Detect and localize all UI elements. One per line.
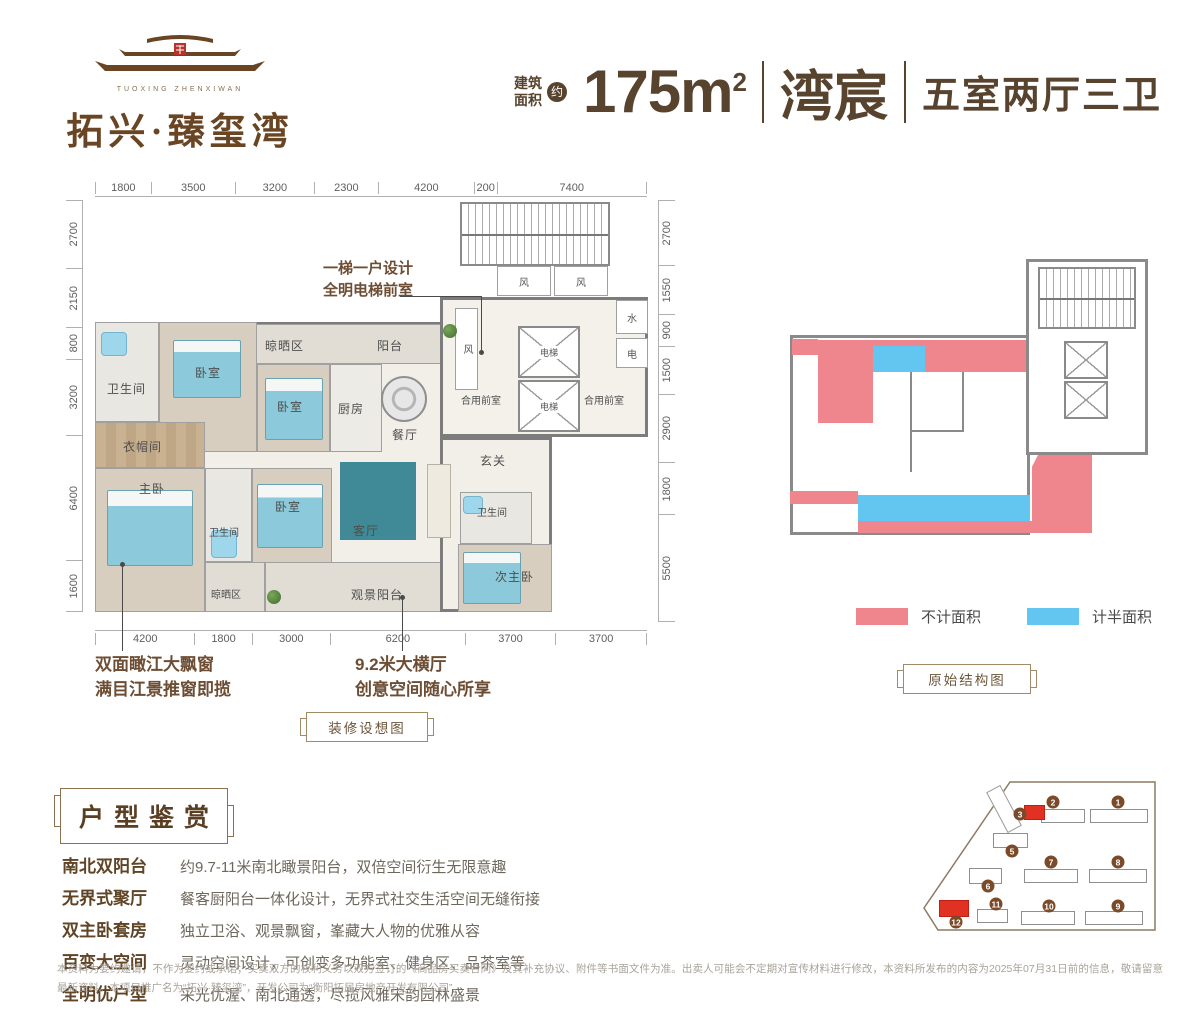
dimension-value: 3000 (252, 633, 330, 645)
callout-bay-window: 双面瞰江大飘窗 满目江景推窗即揽 (95, 652, 231, 702)
legend-swatch (856, 608, 908, 625)
callout-hall: 9.2米大横厅 创意空间随心所享 (355, 652, 491, 702)
site-building (977, 909, 1008, 923)
half-counted-area (873, 346, 925, 372)
feature-row: 无界式聚厅餐客厨阳台一体化设计，无界式社交生活空间无缝衔接 (62, 884, 540, 909)
site-building-number: 5 (1006, 845, 1019, 858)
dimension-value: 5500 (659, 514, 675, 622)
dimension-value: 3700 (465, 633, 556, 645)
water-meter-room: 水 (616, 300, 648, 334)
room-label-shared-lobby: 合用前室 (584, 392, 624, 407)
callout-leader-line (122, 565, 123, 651)
legend-item: 计半面积 (1027, 606, 1152, 627)
dimension-value: 3200 (66, 359, 82, 435)
wind-shaft-3: 风 (455, 308, 478, 390)
room-label-cloakroom: 衣帽间 (123, 438, 162, 455)
callout-hall-line1: 9.2米大横厅 (355, 652, 491, 677)
area-superscript: 2 (733, 67, 746, 97)
area-label-line2: 面积 (514, 92, 542, 109)
dimension-value: 3500 (151, 182, 235, 194)
plant (267, 590, 281, 604)
brand-logo: TUOXING ZHENXIWAN 拓兴·臻玺湾 (52, 30, 308, 155)
dimension-value: 4200 (95, 633, 194, 645)
site-plan: 12356789101112 (912, 772, 1190, 960)
site-building (1024, 869, 1078, 883)
site-building (1090, 809, 1148, 823)
feature-label: 无界式聚厅 (62, 884, 180, 909)
brand-latin: TUOXING ZHENXIWAN (52, 86, 308, 93)
area-prefix: 建筑 面积 约 (514, 75, 567, 109)
room-label-bathroom: 卫生间 (107, 380, 146, 397)
bed (107, 490, 193, 566)
elevator-2: 电梯 (518, 380, 580, 432)
approx-badge: 约 (547, 82, 567, 102)
callout-leader-line (402, 598, 403, 651)
site-building-number: 12 (950, 916, 963, 929)
site-building-number: 6 (982, 880, 995, 893)
callout-hall-line2: 创意空间随心所享 (355, 677, 491, 702)
dimension-value: 1800 (95, 182, 151, 194)
plaque-decor-plan: 装修设想图 (306, 712, 428, 742)
elevator-1: 电梯 (518, 326, 580, 378)
rooms-description: 五室两厅三卫 (922, 64, 1162, 119)
area-label-line1: 建筑 (514, 75, 542, 92)
room-label-bedroom: 卧室 (195, 364, 221, 381)
dimension-value: 6200 (330, 633, 465, 645)
dimension-value: 7400 (497, 182, 648, 194)
half-counted-area (858, 495, 1030, 521)
dimension-value: 3200 (235, 182, 314, 194)
site-building (1024, 805, 1045, 820)
elevator-label: 电梯 (538, 400, 560, 413)
dimension-value: 800 (66, 327, 82, 359)
dimension-value: 2150 (66, 268, 82, 327)
room-label-drying: 晾晒区 (211, 586, 241, 601)
sofa (427, 464, 451, 538)
dimension-value: 3700 (555, 633, 647, 645)
plant (443, 324, 457, 338)
uncounted-area (790, 491, 858, 504)
callout-leader-line (400, 296, 482, 297)
north-balcony (228, 324, 455, 364)
bathtub (101, 332, 127, 356)
area-label: 建筑 面积 (514, 75, 542, 109)
dimension-value: 1550 (659, 265, 675, 313)
room-label-master: 主卧 (139, 480, 165, 497)
dimension-value: 900 (659, 314, 675, 347)
dimensions-bottom: 420018003000620037003700 (95, 630, 647, 647)
feature-desc: 独立卫浴、观景飘窗，峯藏大人物的优雅从容 (180, 920, 480, 941)
legend-label: 计半面积 (1092, 606, 1152, 627)
site-building-number: 11 (990, 898, 1003, 911)
legend: 不计面积计半面积 (856, 606, 1152, 627)
wind-shaft-1: 风 (497, 266, 551, 296)
structural-wall (910, 430, 964, 432)
dimension-value: 6400 (66, 435, 82, 561)
feature-desc: 约9.7-11米南北瞰景阳台，双倍空间衍生无限意趣 (180, 856, 506, 877)
unit-name: 湾宸 (780, 52, 888, 131)
room-label-bedroom: 卧室 (277, 398, 303, 415)
header-divider (762, 61, 764, 123)
site-building-number: 10 (1043, 900, 1056, 913)
structural-diagram (780, 255, 1175, 585)
header-divider (904, 61, 906, 123)
room-label-bathroom: 卫生间 (209, 524, 239, 539)
feature-row: 南北双阳台约9.7-11米南北瞰景阳台，双倍空间衍生无限意趣 (62, 852, 540, 877)
structural-wall (962, 372, 964, 432)
site-building (1041, 809, 1085, 823)
room-label-shared-lobby: 合用前室 (461, 392, 501, 407)
room-label-living: 客厅 (353, 522, 379, 539)
dimensions-left: 27002150800320064001600 (66, 200, 83, 612)
disclaimer-text: 本资料为要约邀请，不作为要约或承诺；买卖双方的权利义务以双方签订的《商品房买卖合… (57, 960, 1163, 998)
header-title: 建筑 面积 约 175m2 湾宸 五室两厅三卫 (514, 52, 1162, 131)
room-label-bathroom: 卫生间 (477, 504, 507, 519)
features-title: 户型鉴赏 (60, 788, 228, 844)
dimensions-top: 180035003200230042002007400 (95, 180, 647, 197)
poster-page: TUOXING ZHENXIWAN 拓兴·臻玺湾 建筑 面积 约 175m2 湾… (0, 0, 1200, 1014)
brand-name: 拓兴·臻玺湾 (52, 101, 308, 155)
site-building-number: 7 (1045, 856, 1058, 869)
dining-table (381, 376, 427, 422)
site-building (939, 900, 969, 917)
room-label-second-master: 次主卧 (495, 568, 534, 585)
site-building-number: 2 (1047, 796, 1060, 809)
structural-elevator (1064, 381, 1108, 419)
plaque-structural-plan: 原始结构图 (903, 664, 1031, 694)
callout-bay-line2: 满目江景推窗即揽 (95, 677, 231, 702)
site-building-number: 9 (1112, 900, 1125, 913)
legend-item: 不计面积 (856, 606, 981, 627)
structural-wall (910, 372, 912, 472)
callout-bay-line1: 双面瞰江大飘窗 (95, 652, 231, 677)
room-label-bedroom: 卧室 (275, 498, 301, 515)
uncounted-area (792, 339, 818, 355)
dimension-value: 2700 (66, 200, 82, 268)
dimension-value: 200 (474, 182, 497, 194)
structural-staircase (1038, 267, 1136, 329)
elevator-label: 电梯 (538, 346, 560, 359)
site-building (1085, 911, 1143, 925)
room-label-dining: 餐厅 (392, 426, 418, 443)
callout-elevator-line2: 全明电梯前室 (323, 280, 413, 302)
dimension-value: 2900 (659, 394, 675, 462)
callout-leader-dot (479, 350, 484, 355)
callout-leader-dot (400, 595, 405, 600)
dimension-value: 1800 (659, 462, 675, 514)
dimensions-right: 270015509001500290018005500 (658, 200, 675, 622)
site-building (1089, 869, 1147, 883)
legend-label: 不计面积 (921, 606, 981, 627)
callout-leader-dot (120, 562, 125, 567)
site-building-number: 8 (1112, 856, 1125, 869)
dimension-value: 2300 (314, 182, 378, 194)
feature-label: 双主卧套房 (62, 916, 180, 941)
site-building-number: 1 (1112, 796, 1125, 809)
staircase (460, 202, 610, 266)
room-label-kitchen: 厨房 (338, 400, 364, 417)
bed (257, 484, 323, 548)
roof-logo-icon (95, 30, 265, 80)
site-building (1021, 911, 1075, 925)
dimension-value: 4200 (378, 182, 474, 194)
area-number: 175m (583, 58, 732, 125)
feature-row: 双主卧套房独立卫浴、观景飘窗，峯藏大人物的优雅从容 (62, 916, 540, 941)
site-building-number: 3 (1014, 808, 1027, 821)
dimension-value: 1500 (659, 346, 675, 394)
room-label-balcony: 阳台 (377, 337, 403, 354)
structural-elevator (1064, 341, 1108, 379)
feature-label: 南北双阳台 (62, 852, 180, 877)
area-value: 175m2 (583, 57, 746, 126)
feature-desc: 餐客厨阳台一体化设计，无界式社交生活空间无缝衔接 (180, 888, 540, 909)
room-label-foyer: 玄关 (480, 452, 506, 469)
legend-swatch (1027, 608, 1079, 625)
room-label-drying: 晾晒区 (265, 337, 304, 354)
wind-shaft-2: 风 (554, 266, 608, 296)
electric-meter-room: 电 (616, 338, 648, 368)
uncounted-area (818, 343, 873, 423)
callout-leader-line (481, 296, 482, 352)
dimension-value: 1800 (194, 633, 251, 645)
dimension-value: 2700 (659, 200, 675, 265)
callout-elevator-line1: 一梯一户设计 (323, 258, 413, 280)
dimension-value: 1600 (66, 560, 82, 612)
room-label-view-balcony: 观景阳台 (351, 586, 403, 603)
